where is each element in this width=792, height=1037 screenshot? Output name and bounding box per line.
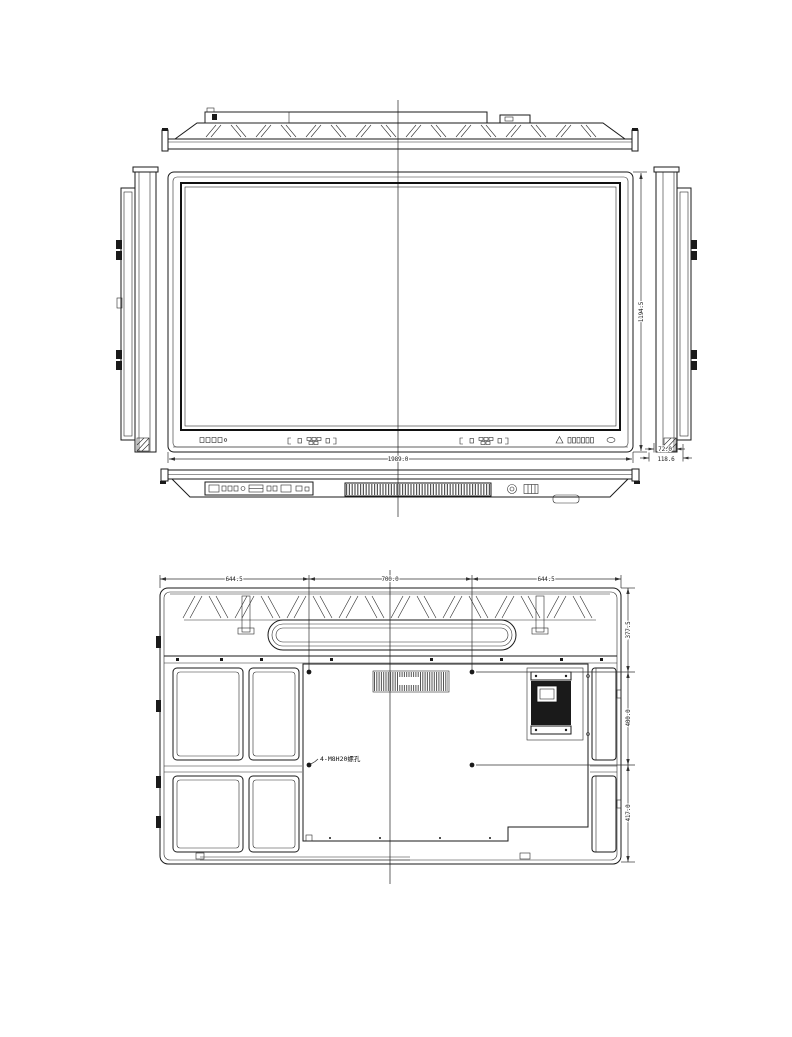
vesa-hole [307,670,312,675]
handle-slot [268,620,516,650]
screen [181,183,620,430]
dim-depth-body: 72.0 [645,443,685,453]
depth-body-label: 72.0 [658,446,672,453]
vesa-hole [470,670,475,675]
front-view [168,172,633,452]
vesa-annotation: 4-M8H20螺孔 [310,754,361,764]
bottom-tab [553,495,579,503]
top-view [162,108,638,151]
vesa-hole [470,763,475,768]
rear-top-right-label: 644.5 [537,576,555,583]
rear-bottom-strip [196,853,530,860]
rear-rating-label [373,671,449,692]
right-side-view [654,167,697,452]
bottom-vent-grille [345,483,491,496]
dim-overall-width: 1989.0 [168,452,633,463]
depth-total-label: 118.6 [657,456,675,463]
rear-right-bottom-label: 417.0 [625,804,632,822]
rear-right-top-label: 377.5 [625,621,632,639]
top-vent-slots [206,125,596,137]
wall-bracket [121,188,135,440]
rear-left-panels [164,668,302,852]
technical-drawing-page: 1989.0 1194.5 [0,0,792,1037]
bottom-connectors [508,485,539,494]
rear-view: 644.5 700.0 644.5 [156,575,635,864]
overall-height-label: 1194.5 [638,301,645,322]
vesa-hole [307,763,312,768]
rear-rail [164,656,617,663]
rear-right-middle-label: 400.0 [625,709,632,727]
rear-top-left-label: 644.5 [225,576,243,583]
overall-width-label: 1989.0 [388,456,409,463]
left-side-view [116,167,158,452]
front-bezel-icons-right [556,437,615,444]
display-outline-drawing: 1989.0 1194.5 [0,0,792,1037]
front-bezel-icons-mid-right [460,438,508,445]
power-button-icon [607,438,615,443]
vesa-annotation-label: 4-M8H20螺孔 [320,754,361,763]
front-bezel-icons-left [200,438,227,443]
rear-right-panels [590,668,617,852]
wall-bracket [677,188,691,440]
front-bezel-icons-mid-left [288,438,336,445]
bottom-view [160,469,640,503]
ops-module [527,668,590,740]
dim-rear-top-chain: 644.5 700.0 644.5 [160,575,621,672]
rear-top-center-label: 700.0 [381,576,399,583]
rating-plate-marks [209,485,309,492]
dim-overall-height: 1194.5 [633,172,647,452]
rear-edge-tabs [156,636,621,828]
